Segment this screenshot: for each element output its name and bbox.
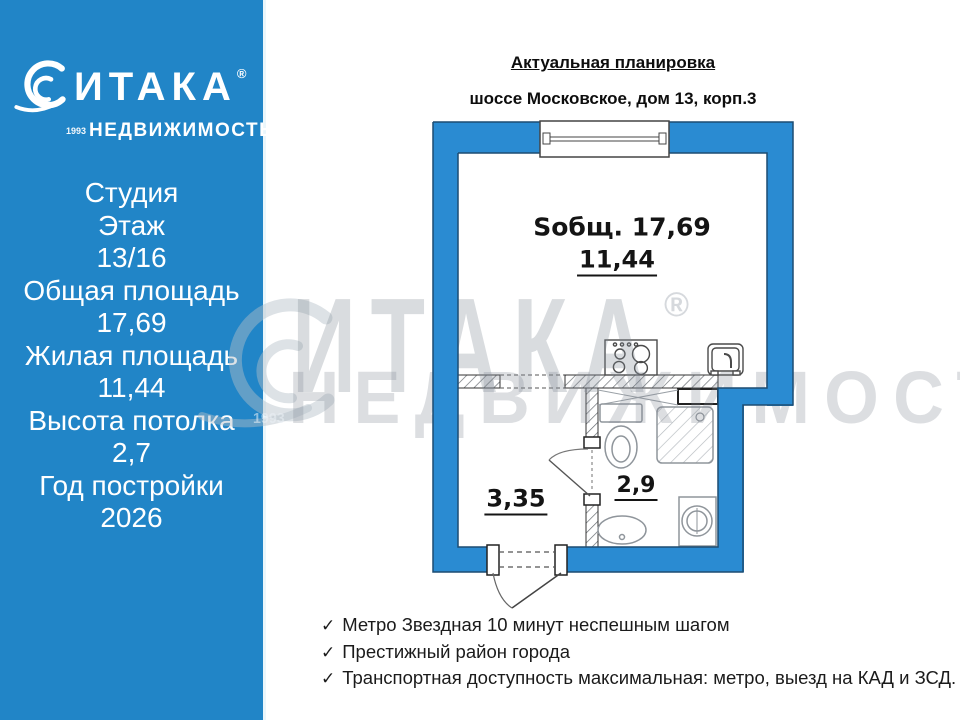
feature-list: ✓Метро Звездная 10 минут неспешным шагом… [321, 612, 956, 692]
duct-box [598, 389, 718, 405]
watermark-subtitle: НЕДВИЖИМОСТЬ [289, 356, 960, 439]
stat-type: Студия [0, 177, 263, 210]
kitchen-sink-icon [708, 344, 743, 375]
bathroom-door [549, 449, 590, 496]
check-icon: ✓ [321, 669, 335, 688]
window [540, 121, 669, 157]
flyer-root: { "sidebar": { "logo": { "brand": "ИТАКА… [0, 0, 960, 720]
label-hall-area: 3,35 [484, 485, 547, 516]
washing-machine-icon [679, 497, 716, 546]
stat-ceiling-value: 2,7 [0, 437, 263, 470]
stat-floor-value: 13/16 [0, 242, 263, 275]
entrance-door [487, 545, 567, 608]
watermark-brand: ИТАКА [292, 278, 661, 413]
shower-icon [657, 407, 713, 463]
label-total-area: Sобщ. 17,69 [533, 213, 711, 242]
property-stats: Студия Этаж 13/16 Общая площадь 17,69 Жи… [0, 177, 263, 535]
logo-year: 1993 [66, 126, 86, 136]
feature-text: Транспортная доступность максимальная: м… [342, 667, 956, 688]
partition-wall-horizontal [457, 375, 718, 388]
wave-swirl-icon [14, 56, 68, 118]
feature-item: ✓Престижный район города [321, 639, 956, 666]
sidebar: ИТАКА® 1993 НЕДВИЖИМОСТЬ Студия Этаж 13/… [0, 0, 266, 720]
label-room-area: 11,44 [577, 246, 657, 277]
watermark-reg-mark: ® [664, 286, 689, 325]
stat-floor-label: Этаж [0, 210, 263, 243]
stat-total-value: 17,69 [0, 307, 263, 340]
feature-text: Престижный район города [342, 641, 570, 662]
label-bath-area: 2,9 [615, 473, 658, 501]
logo-subtitle: НЕДВИЖИМОСТЬ [89, 120, 274, 142]
stat-year-label: Год постройки [0, 470, 263, 503]
bath-sink-icon [598, 516, 646, 544]
toilet-icon [600, 404, 642, 468]
stat-year-value: 2026 [0, 502, 263, 535]
feature-text: Метро Звездная 10 минут неспешным шагом [342, 614, 729, 635]
stat-living-value: 11,44 [0, 372, 263, 405]
feature-item: ✓Метро Звездная 10 минут неспешным шагом [321, 612, 956, 639]
stat-ceiling-label: Высота потолка [0, 405, 263, 438]
page-title: Актуальная планировка [266, 53, 960, 73]
stat-total-label: Общая площадь [0, 275, 263, 308]
feature-item: ✓Транспортная доступность максимальная: … [321, 665, 956, 692]
stove-icon [605, 340, 657, 375]
check-icon: ✓ [321, 616, 335, 635]
partition-wall-vertical [584, 388, 600, 548]
logo-brand-text: ИТАКА [74, 65, 237, 109]
stat-living-label: Жилая площадь [0, 340, 263, 373]
itaka-logo: ИТАКА® 1993 НЕДВИЖИМОСТЬ [14, 56, 250, 142]
logo-reg-mark: ® [237, 66, 247, 81]
address-subtitle: шоссе Московское, дом 13, корп.3 [266, 89, 960, 109]
logo-brand: ИТАКА® [74, 67, 246, 107]
check-icon: ✓ [321, 643, 335, 662]
